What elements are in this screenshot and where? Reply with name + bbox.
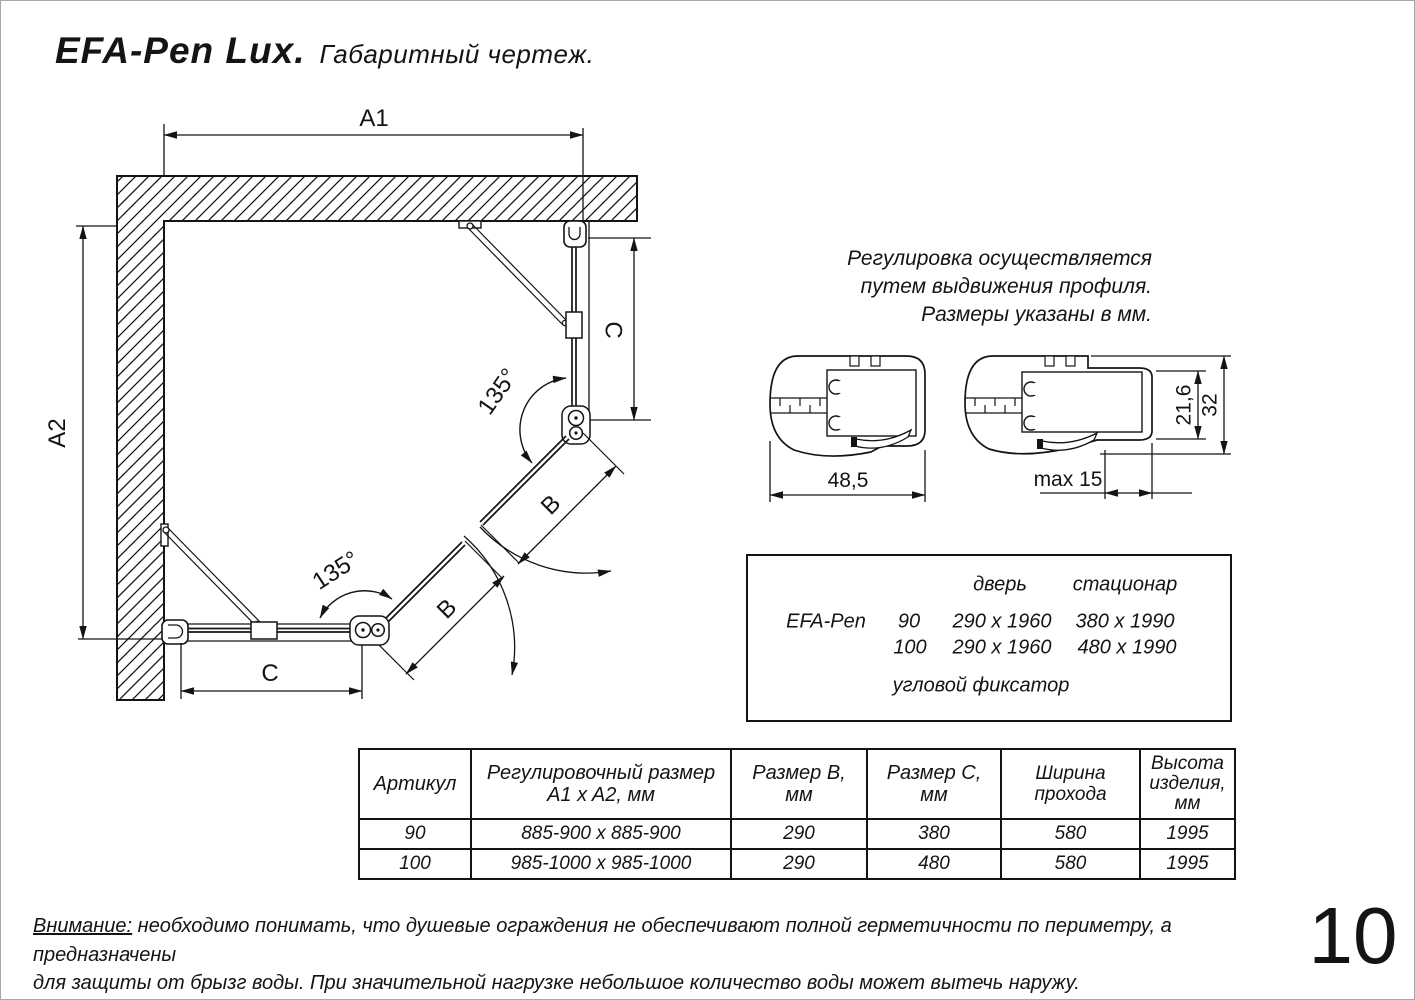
door-swing-arc-upper [480, 527, 611, 573]
a2-label: A2 [44, 418, 71, 447]
cell-article-90: 90 [359, 819, 471, 849]
size-table: Артикул Регулировочный размер A1 x A2, м… [358, 748, 1236, 880]
spec-door-header: дверь [973, 574, 1027, 597]
warning-line1-rest: необходимо понимать, что душевые огражде… [33, 915, 1172, 966]
glass-depth-label: 21,6 [1173, 385, 1196, 426]
profile-section-closed: 48,5 [770, 356, 925, 502]
col-size-c: Размер C, мм [867, 749, 1001, 819]
adjustment-note-line1: Регулировка осуществляется [767, 245, 1152, 273]
cell-c-100: 480 [867, 849, 1001, 879]
profile-width-label: 48,5 [828, 469, 869, 492]
c-bottom-label: C [261, 660, 278, 687]
c-right-label: C [600, 321, 627, 338]
spec-door-90: 290 x 1960 [953, 611, 1052, 634]
cell-height-100: 1995 [1140, 849, 1235, 879]
wall-profile-top [564, 221, 586, 247]
warning-line2: для защиты от брызг воды. При значительн… [33, 969, 1273, 998]
right-fixed-panel [459, 221, 590, 444]
col-height: Высота изделия, мм [1140, 749, 1235, 819]
cell-pass-90: 580 [1001, 819, 1140, 849]
profile-extension-label: max 15 [1034, 468, 1103, 491]
spec-size-100: 100 [893, 637, 926, 660]
table-row: 90 885-900 x 885-900 290 380 580 1995 [359, 819, 1235, 849]
page-number: 10 [1298, 890, 1408, 982]
col-size-b: Размер B, мм [731, 749, 867, 819]
spec-fixed-100: 480 x 1990 [1078, 637, 1177, 660]
cell-adjust-100: 985-1000 x 985-1000 [471, 849, 731, 879]
adjustment-note-line2: путем выдвижения профиля. [767, 273, 1152, 301]
door-swing-arc-lower [464, 536, 515, 675]
angle-upper-label: 135° [473, 364, 524, 420]
cell-pass-100: 580 [1001, 849, 1140, 879]
cell-b-90: 290 [731, 819, 867, 849]
cell-article-100: 100 [359, 849, 471, 879]
spec-size-90: 90 [898, 611, 920, 634]
spec-box: дверь стационар EFA-Pen 90 290 x 1960 38… [746, 554, 1232, 722]
b-lower-label: B [432, 594, 462, 624]
spec-door-100: 290 x 1960 [953, 637, 1052, 660]
wall-profile-left [162, 620, 188, 644]
spec-fixed-header: стационар [1073, 574, 1178, 597]
bottom-fixed-panel [161, 524, 389, 645]
spec-corner-note: угловой фиксатор [893, 675, 1070, 698]
cell-adjust-90: 885-900 x 885-900 [471, 819, 731, 849]
adjustment-note: Регулировка осуществляется путем выдвиже… [767, 245, 1152, 329]
cell-b-100: 290 [731, 849, 867, 879]
profile-section-extended: max 15 21,6 32 [965, 356, 1231, 499]
spec-model: EFA-Pen [786, 611, 866, 634]
angle-upper-135: 135° [473, 364, 566, 463]
glass-clamp-bottom [251, 622, 277, 639]
col-pass-width: Ширина прохода [1001, 749, 1140, 819]
angle-lower-label: 135° [308, 546, 364, 596]
cell-height-90: 1995 [1140, 819, 1235, 849]
warning-line1: Внимание: необходимо понимать, что душев… [33, 912, 1273, 969]
b-upper-label: B [536, 490, 566, 520]
spec-fixed-90: 380 x 1990 [1076, 611, 1175, 634]
adjustment-note-line3: Размеры указаны в мм. [767, 301, 1152, 329]
dimension-c-right: C [588, 238, 651, 420]
dimension-c-bottom: C [181, 643, 362, 699]
warning-text: Внимание: необходимо понимать, что душев… [33, 912, 1273, 998]
glass-clamp-right [566, 312, 582, 338]
col-adjust-range: Регулировочный размер A1 x A2, мм [471, 749, 731, 819]
size-table-header-row: Артикул Регулировочный размер A1 x A2, м… [359, 749, 1235, 819]
doors: B B [373, 433, 624, 680]
cell-c-90: 380 [867, 819, 1001, 849]
angle-lower-135: 135° [308, 546, 392, 618]
col-article: Артикул [359, 749, 471, 819]
profile-height-label: 32 [1199, 393, 1222, 416]
a1-label: A1 [359, 105, 388, 132]
warning-label: Внимание: [33, 915, 132, 937]
table-row: 100 985-1000 x 985-1000 290 480 580 1995 [359, 849, 1235, 879]
